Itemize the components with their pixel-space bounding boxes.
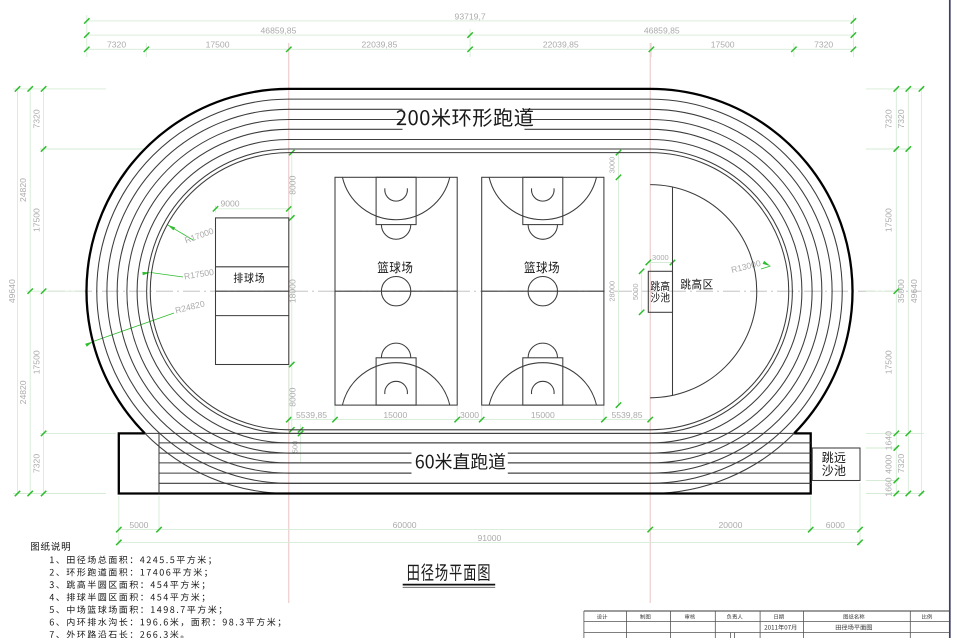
svg-text:5539,85: 5539,85 [296,410,327,420]
svg-text:7320: 7320 [884,109,894,128]
svg-text:8000: 8000 [288,387,298,406]
svg-text:R13000: R13000 [730,258,762,275]
svg-text:7320: 7320 [31,109,41,128]
svg-text:49640: 49640 [909,279,919,303]
svg-text:6000: 6000 [826,520,845,530]
svg-text:17500: 17500 [31,350,41,374]
svg-text:5000: 5000 [631,283,640,300]
svg-text:7320: 7320 [107,40,126,50]
svg-text:1660: 1660 [884,477,894,496]
svg-text:7320: 7320 [31,454,41,473]
svg-text:7320: 7320 [896,109,906,128]
svg-text:4000: 4000 [884,454,894,473]
svg-text:24820: 24820 [18,380,28,404]
svg-text:22039,85: 22039,85 [543,40,579,50]
svg-text:17500: 17500 [884,350,894,374]
svg-text:15000: 15000 [383,410,407,420]
svg-text:R24820: R24820 [174,298,206,315]
svg-text:3000: 3000 [608,157,617,174]
svg-text:15000: 15000 [531,410,555,420]
svg-text:49640: 49640 [7,279,17,303]
svg-text:9000: 9000 [220,199,239,209]
svg-text:17500: 17500 [884,208,894,232]
svg-text:20000: 20000 [718,520,742,530]
svg-text:R17500: R17500 [183,267,215,282]
svg-text:28000: 28000 [608,281,617,302]
svg-text:5000: 5000 [129,520,148,530]
svg-text:93719,7: 93719,7 [455,11,486,21]
svg-text:46859,85: 46859,85 [261,26,297,36]
svg-text:24820: 24820 [18,178,28,202]
svg-text:7320: 7320 [814,40,833,50]
svg-text:R17000: R17000 [183,226,215,246]
svg-text:8000: 8000 [288,175,298,194]
svg-text:3000: 3000 [460,410,479,420]
svg-text:35000: 35000 [896,279,906,303]
svg-text:91000: 91000 [477,533,501,543]
svg-text:22039,85: 22039,85 [362,40,398,50]
svg-text:17500: 17500 [206,40,230,50]
svg-text:17500: 17500 [31,208,41,232]
svg-text:3000: 3000 [652,253,669,262]
svg-text:5539,85: 5539,85 [611,410,642,420]
svg-text:60000: 60000 [393,520,417,530]
svg-text:7320: 7320 [896,454,906,473]
svg-text:1640: 1640 [884,431,894,450]
svg-text:46859,85: 46859,85 [644,26,680,36]
svg-text:17500: 17500 [711,40,735,50]
